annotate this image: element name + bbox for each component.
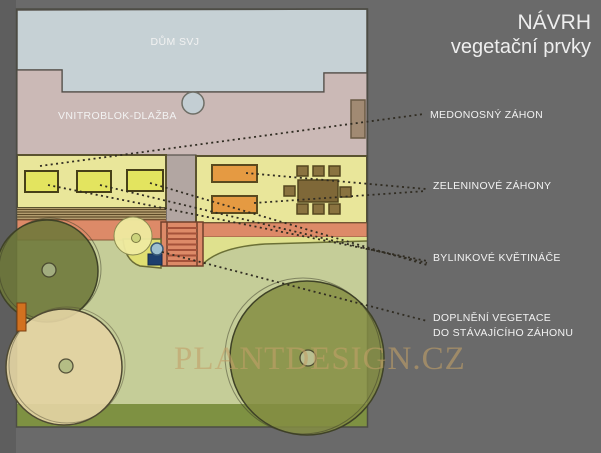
- building-dum-svj: [17, 9, 367, 92]
- watermark: PLANTDESIGN.CZ: [174, 341, 474, 378]
- site-plan-drawing: [0, 0, 601, 453]
- stairs: [161, 222, 203, 266]
- annotation-doplneni-line-2: DO STÁVAJÍCÍHO ZÁHONU: [433, 326, 573, 341]
- terracotta-strip-right: [196, 223, 367, 237]
- annotation-doplneni-line-1: DOPLNĚNÍ VEGETACE: [433, 311, 573, 326]
- annotation-bylinkove-kvetinace: BYLINKOVÉ KVĚTINÁČE: [433, 251, 561, 266]
- paving-label: VNITROBLOK-DLAŽBA: [58, 110, 177, 122]
- tree-small-pale: [114, 217, 152, 255]
- annotation-medonosny-zahon: MEDONOSNÝ ZÁHON: [430, 108, 543, 123]
- page-title: NÁVRH vegetační prvky: [451, 10, 591, 59]
- title-line-1: NÁVRH: [451, 10, 591, 35]
- herb-planter-1: [25, 171, 58, 192]
- deck-stripe-band: [17, 208, 166, 220]
- herb-planter-3: [127, 170, 163, 191]
- left-edge-orange-feature: [17, 303, 26, 331]
- honey-bed-rectangle: [351, 100, 365, 138]
- annotation-doplneni-vegetace: DOPLNĚNÍ VEGETACE DO STÁVAJÍCÍHO ZÁHONU: [433, 311, 573, 340]
- annotation-zeleninove-zahony: ZELENINOVÉ ZÁHONY: [433, 179, 551, 194]
- vegetation-plan-page: DŮM SVJ VNITROBLOK-DLAŽBA NÁVRH vegetačn…: [0, 0, 601, 453]
- building-label: DŮM SVJ: [130, 36, 220, 48]
- vegetable-bed-1: [212, 165, 257, 182]
- paving-circle-feature: [182, 92, 204, 114]
- title-line-2: vegetační prvky: [451, 35, 591, 59]
- herb-planter-2: [77, 171, 111, 192]
- vegetable-bed-2: [212, 196, 257, 213]
